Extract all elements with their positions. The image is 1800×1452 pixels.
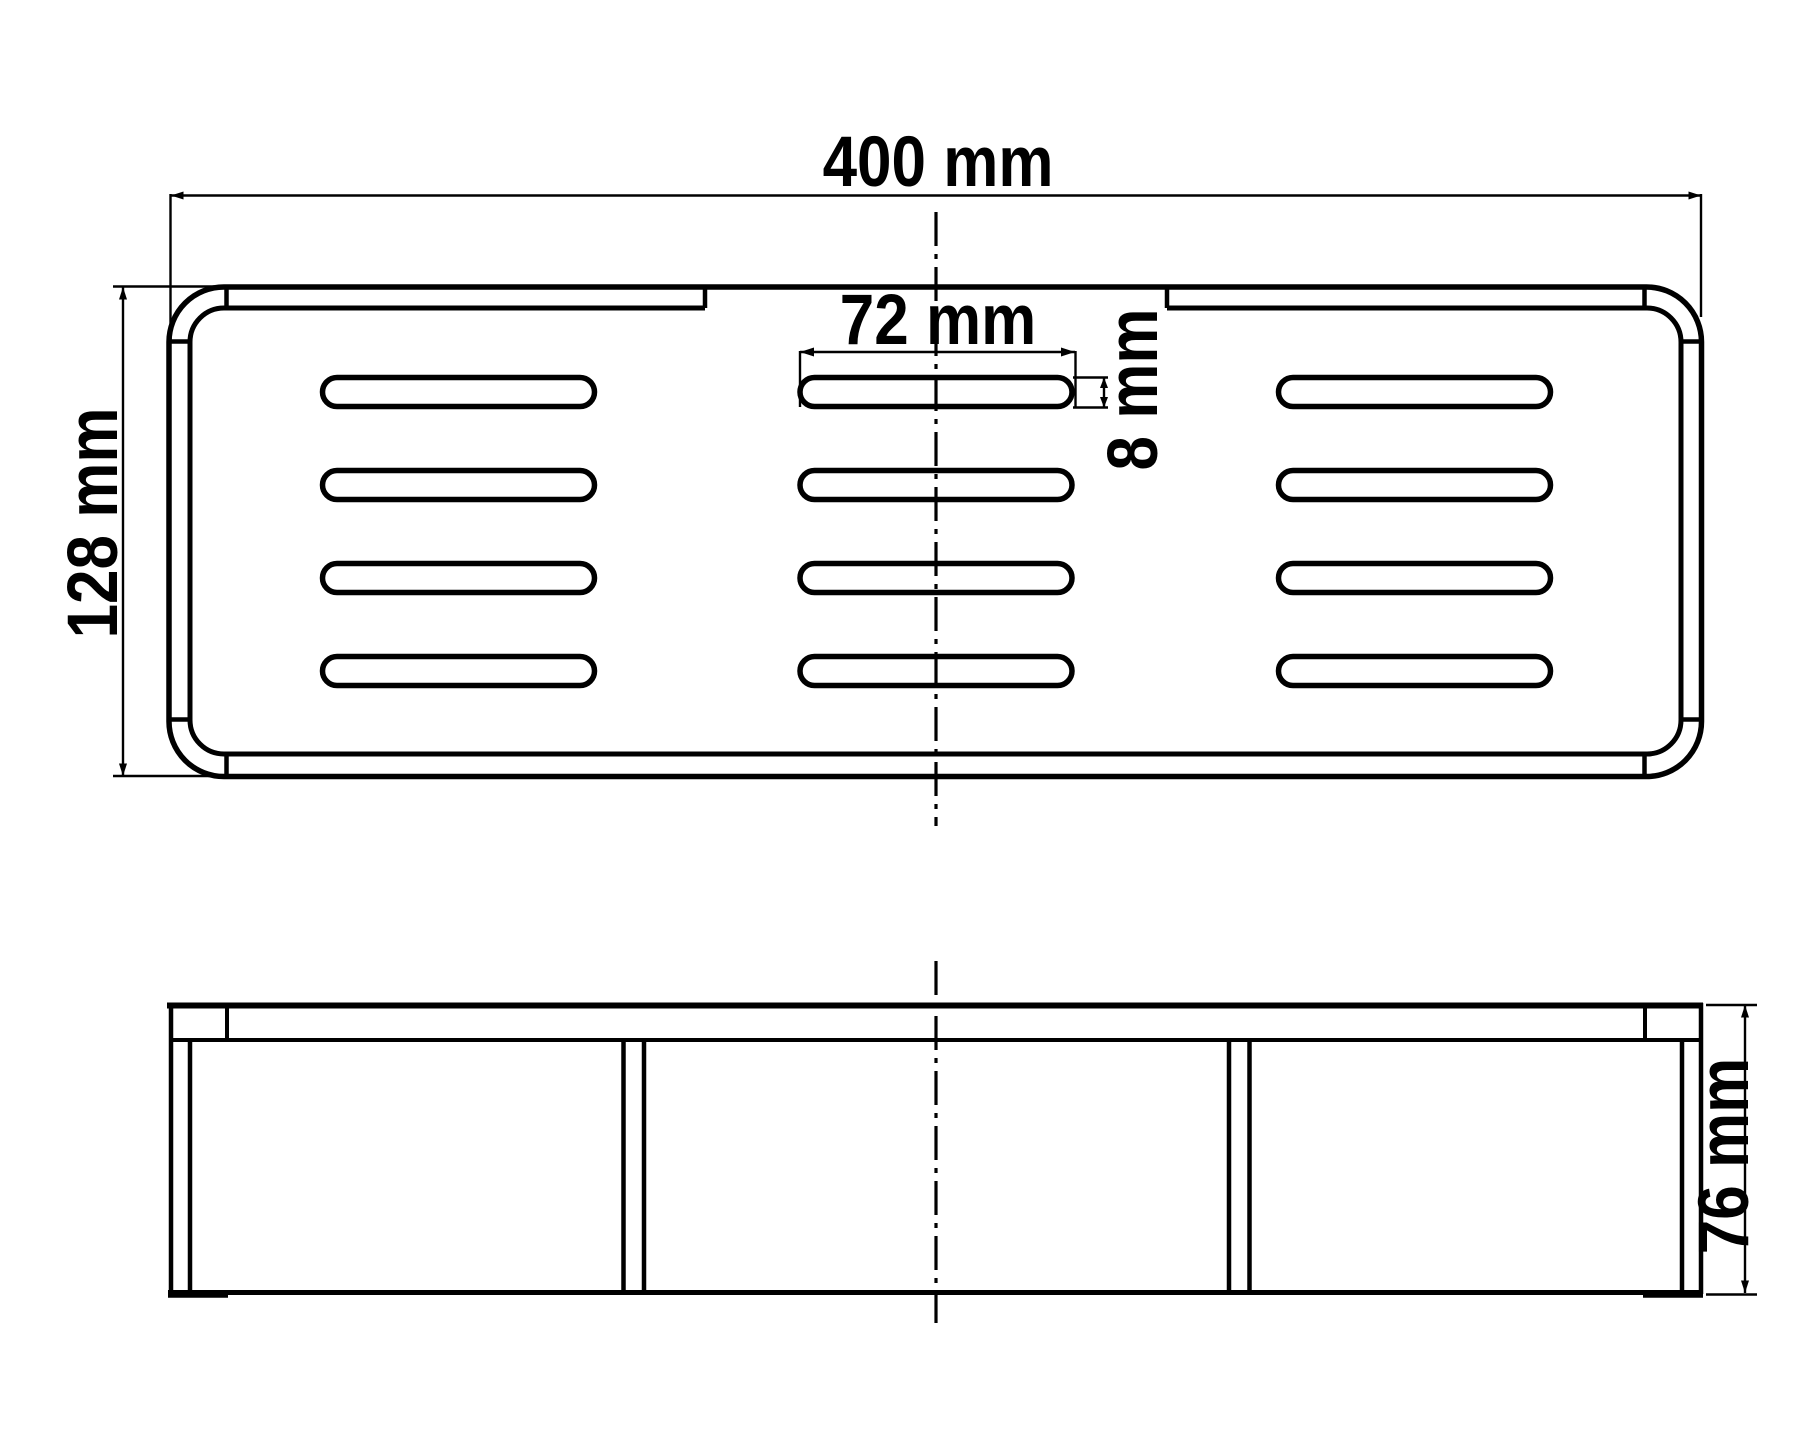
svg-text:400 mm: 400 mm [823, 123, 1054, 202]
svg-text:128 mm: 128 mm [54, 408, 133, 639]
svg-text:76 mm: 76 mm [1685, 1058, 1764, 1254]
svg-text:72 mm: 72 mm [840, 281, 1036, 360]
svg-text:8 mm: 8 mm [1094, 309, 1173, 471]
